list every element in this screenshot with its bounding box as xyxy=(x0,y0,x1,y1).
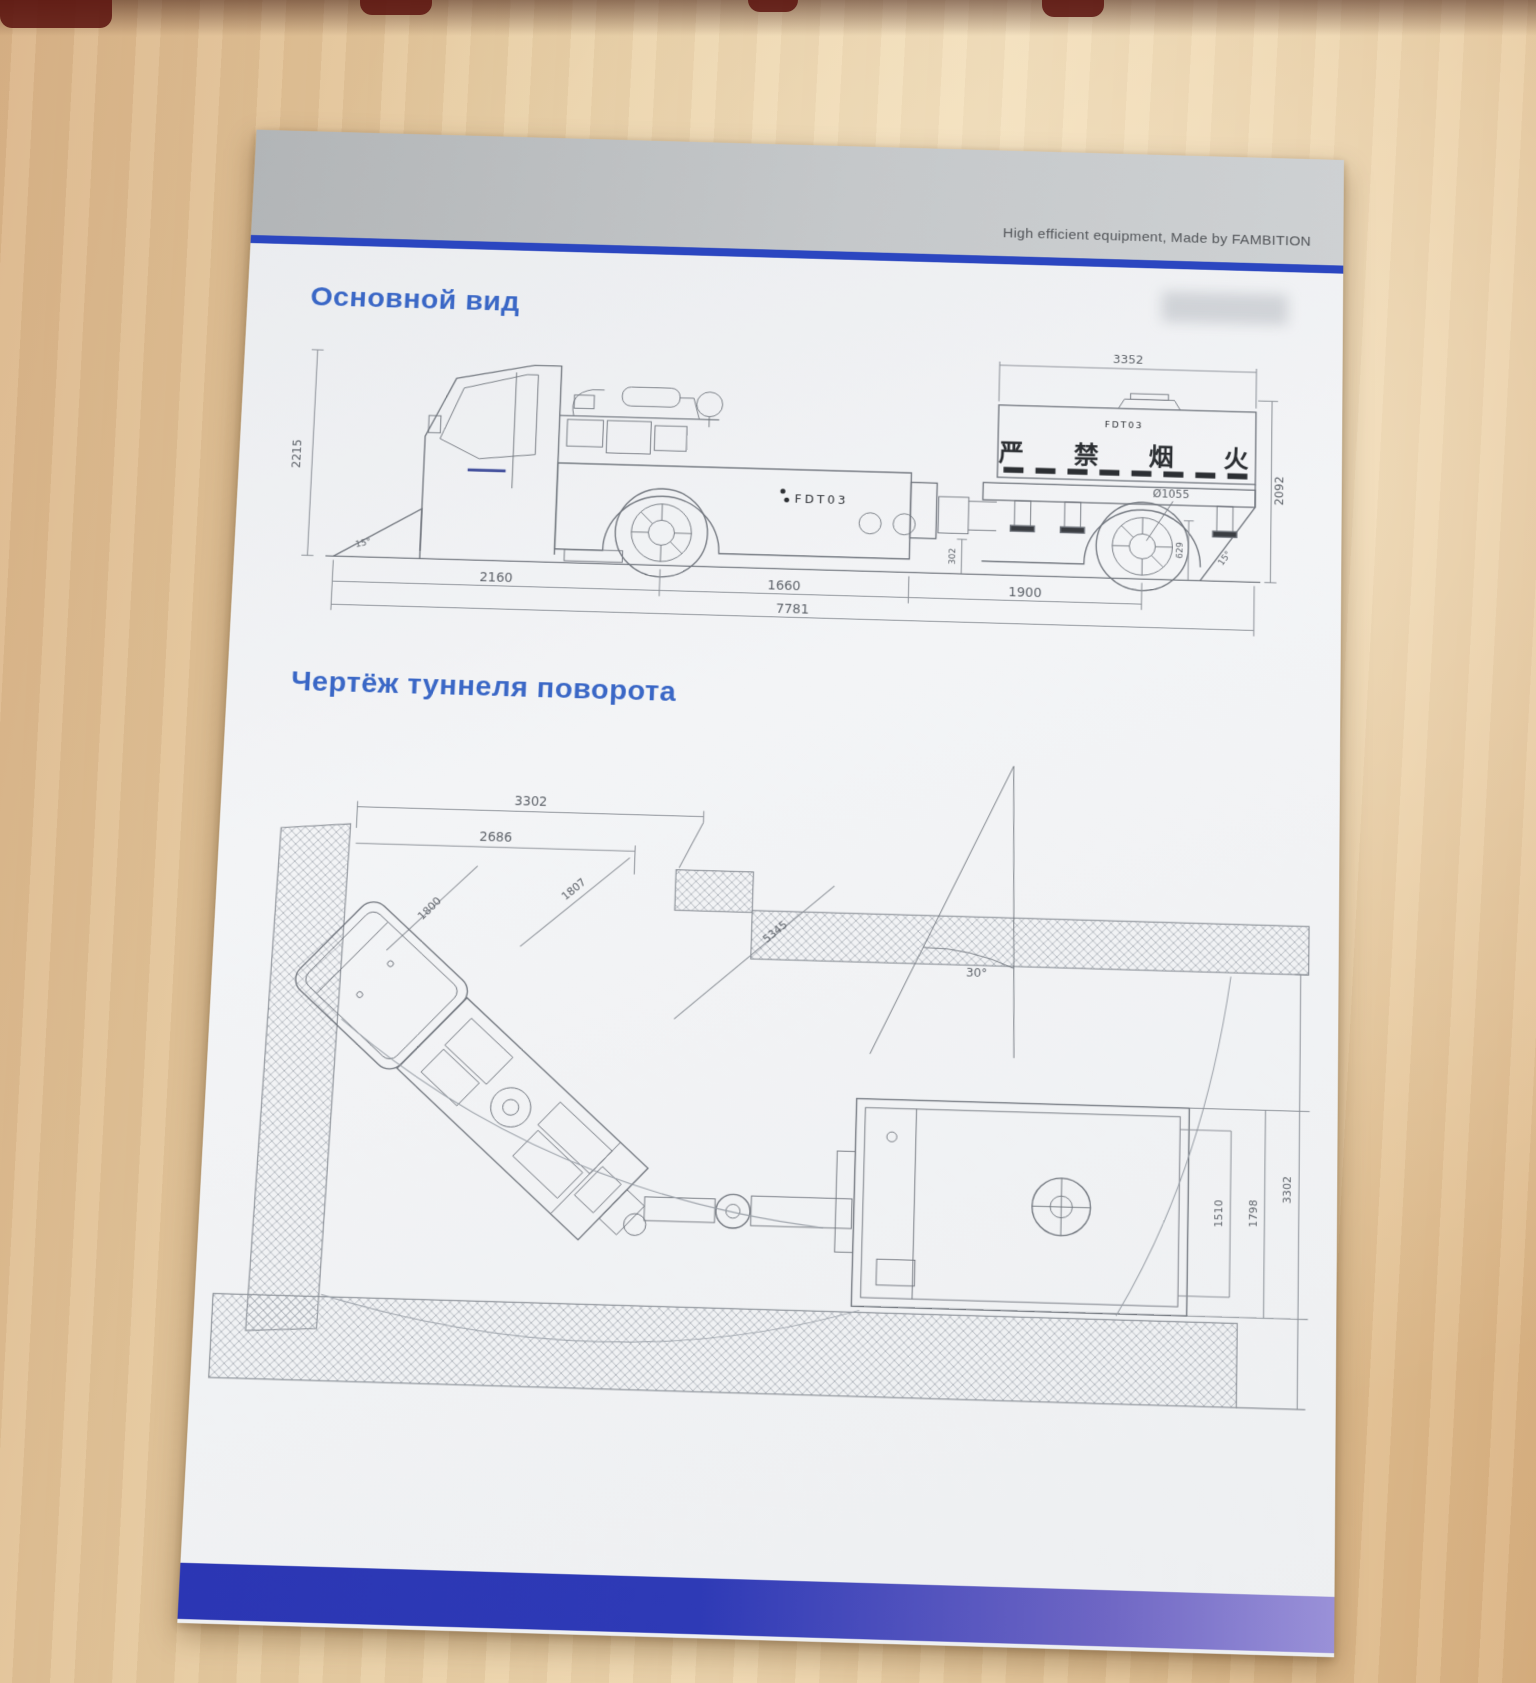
brochure-page: High efficient equipment, Made by FAMBIT… xyxy=(177,130,1344,1658)
table-edge-object xyxy=(748,0,798,12)
turning-arcs xyxy=(319,951,1231,1360)
turning-tunnel-drawing: 30° 3302 2686 1807 5345 1800 xyxy=(197,717,1321,1474)
dim-outer-span-label: 3302 xyxy=(514,795,547,810)
dim-overall-length-label: 7781 xyxy=(776,602,810,617)
tank-model-label: FDT03 xyxy=(1105,420,1144,430)
dim-front-angle-label: 15° xyxy=(355,537,373,550)
engine-deck xyxy=(558,385,723,456)
section-title-turning: Чертёж туннеля поворота xyxy=(290,666,676,709)
model-label-dot xyxy=(780,489,785,494)
dim-mid-section-label: 1660 xyxy=(767,579,801,594)
dim-rear-axle-height-label: 629 xyxy=(1175,542,1185,559)
tunnel-walls xyxy=(209,821,1310,1410)
table-edge-object xyxy=(360,0,432,15)
trailer-plan-view xyxy=(833,1098,1189,1316)
dim-tunnel-width-label: 3302 xyxy=(1281,1176,1294,1204)
dim-inner-span-label: 2686 xyxy=(479,830,512,846)
turn-angle-construction xyxy=(870,762,1020,1058)
dim-ground-clearance-label: 302 xyxy=(948,548,958,565)
truck-cab xyxy=(420,362,562,554)
model-label-dot xyxy=(784,497,789,502)
dim-machine-width-label: 1800 xyxy=(415,894,444,922)
articulation-hitch xyxy=(910,482,997,540)
ground-line xyxy=(325,556,1260,583)
header-tagline: High efficient equipment, Made by FAMBIT… xyxy=(1003,226,1311,250)
dim-tank-length xyxy=(999,361,1257,408)
model-label: FDT03 xyxy=(795,493,849,508)
dim-radius-inner-label: 1807 xyxy=(559,876,589,903)
watermark-smudge xyxy=(1162,291,1288,325)
water-tank xyxy=(981,389,1256,582)
dim-overall-height-label: 2215 xyxy=(289,439,304,468)
dim-front-section-label: 2160 xyxy=(479,571,513,586)
truck-body xyxy=(554,463,916,571)
truck-plan-view xyxy=(289,896,685,1275)
front-ramp xyxy=(333,506,421,558)
dim-trailer-inner-width-label: 1510 xyxy=(1212,1199,1226,1227)
dim-bottom-row xyxy=(331,560,1254,636)
table-edge-object xyxy=(0,0,112,28)
dim-departure-angle-label: 15° xyxy=(1217,550,1234,568)
table-edge-object xyxy=(1042,0,1104,17)
dim-overall-height xyxy=(301,350,323,556)
dim-trailer-outer-width-label: 1798 xyxy=(1246,1199,1260,1227)
dim-rear-height-label: 2092 xyxy=(1272,476,1286,506)
dim-tank-length-label: 3352 xyxy=(1113,353,1144,367)
dim-rear-section-label: 1900 xyxy=(1008,586,1041,601)
section-title-main-view: Основной вид xyxy=(310,282,521,319)
tank-supports xyxy=(982,500,1238,569)
turn-angle-label: 30° xyxy=(966,966,987,980)
footer-stripe xyxy=(177,1563,1334,1654)
dim-wheel-diameter-label: Ø1055 xyxy=(1153,487,1190,500)
wheel-dia-leader xyxy=(1146,501,1173,542)
truck-side-view-drawing: 2215 15° FDT03 FDT03 严 禁 烟 火 3352 2092 Ø… xyxy=(264,320,1294,645)
